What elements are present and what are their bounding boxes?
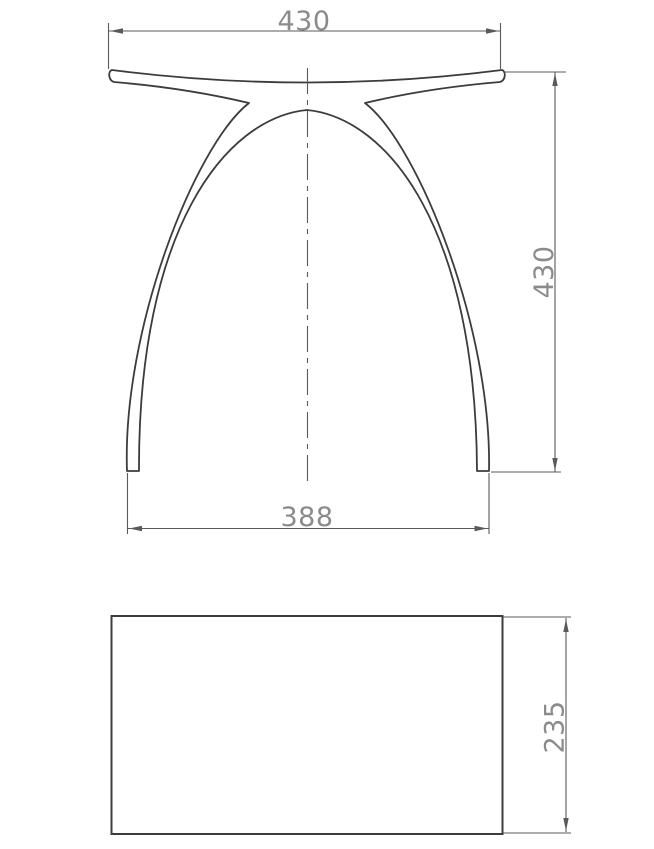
seat-plan-outline: [112, 616, 503, 834]
arrowhead-up-icon: [552, 73, 557, 86]
technical-drawing-canvas: 430 430 388: [0, 0, 654, 849]
dimension-base-width: 388: [128, 473, 490, 534]
drawing-sheet: 430 430 388: [0, 0, 654, 849]
arrowhead-up-icon: [563, 619, 568, 632]
plan-view: 235: [112, 616, 572, 834]
arrowhead-left-icon: [129, 526, 142, 531]
dimension-label-seat-width: 430: [277, 6, 330, 37]
dimension-overall-height: 430: [491, 72, 566, 472]
arrowhead-right-icon: [475, 526, 488, 531]
dimension-label-depth: 235: [540, 700, 571, 753]
arrowhead-down-icon: [563, 818, 568, 831]
dimension-seat-width: 430: [109, 6, 501, 69]
arrowhead-left-icon: [110, 28, 123, 33]
front-view: 430 430 388: [109, 6, 567, 534]
dimension-label-overall-height: 430: [529, 245, 560, 298]
arrowhead-down-icon: [552, 458, 557, 471]
dimension-depth: 235: [504, 617, 572, 833]
arrowhead-right-icon: [486, 28, 499, 33]
dimension-label-base-width: 388: [280, 502, 333, 533]
